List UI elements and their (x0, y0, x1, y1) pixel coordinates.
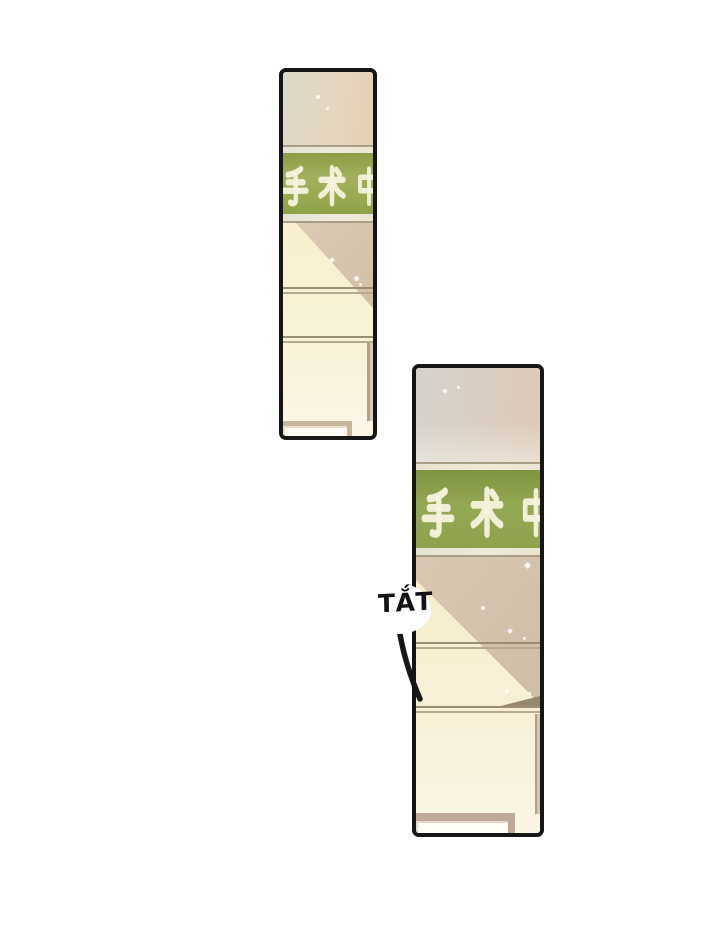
surgery-sign-banner: 手术中 (283, 145, 373, 223)
hanzi-zhong-icon (354, 164, 373, 206)
door-jamb-line (367, 343, 370, 421)
diagonal-shadow (416, 557, 540, 833)
wall-trim-line (283, 336, 373, 343)
wall-lower (283, 223, 373, 436)
wall-trim-line (416, 642, 540, 649)
wall-trim-line (283, 287, 373, 294)
sfx-text: TẮT (378, 588, 433, 618)
sparkle (354, 276, 359, 281)
diagonal-shadow (283, 223, 373, 436)
wall-lower (416, 557, 540, 833)
sparkle (505, 689, 509, 693)
hanzi-shou-icon (283, 164, 310, 206)
sign-top-strip (283, 145, 373, 153)
sparkle (443, 389, 447, 393)
wall-trim-line (416, 706, 540, 713)
hanzi-zhong-icon (518, 486, 540, 538)
sparkle (359, 283, 362, 286)
surgery-sign-banner: 手术中 (416, 462, 540, 557)
sparkle (523, 637, 526, 640)
sparkle (326, 107, 329, 110)
sparkle (316, 95, 320, 99)
sign-glyphs (283, 164, 373, 206)
wall-upper (416, 368, 540, 462)
door-jamb-line (535, 714, 538, 814)
surgery-sign-text: 手术中 (416, 470, 417, 471)
hanzi-shu-icon (317, 164, 347, 206)
sign-green-board: 手术中 (283, 153, 373, 214)
sparkle (457, 386, 460, 389)
sign-top-strip (416, 462, 540, 470)
door-jamb-shade (537, 714, 540, 814)
door-jamb-shade (370, 343, 374, 421)
hanzi-shou-icon (420, 486, 456, 538)
comic-page: 手术中 (0, 0, 720, 948)
sparkle (528, 692, 531, 695)
sign-green-board: 手术中 (416, 470, 540, 548)
hanzi-shu-icon (469, 486, 505, 538)
sparkle (481, 606, 485, 610)
panel-top: 手术中 (279, 68, 377, 440)
sign-bottom-strip (283, 214, 373, 223)
sign-glyphs (420, 486, 540, 538)
surgery-sign-text: 手术中 (283, 153, 284, 154)
door-frame (416, 813, 515, 833)
sign-bottom-strip (416, 548, 540, 557)
sfx-motion-line (394, 624, 424, 702)
door-frame (283, 421, 352, 436)
